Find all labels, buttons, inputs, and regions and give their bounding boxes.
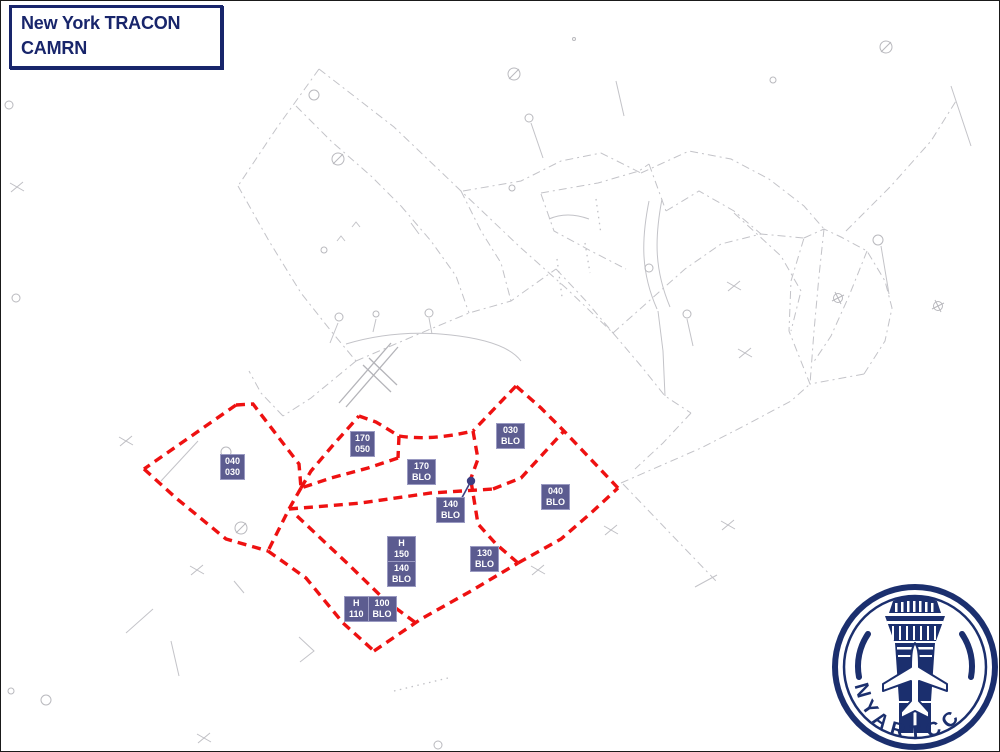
altitude-value: 150 (392, 549, 411, 560)
altitude-label-130-blo: 130 BLO (471, 547, 498, 571)
altitude-value: 170 (412, 461, 431, 472)
altitude-label-030-blo: 030 BLO (497, 424, 524, 448)
altitude-value: BLO (441, 510, 460, 521)
altitude-value: 110 (349, 609, 364, 620)
altitude-value: H (349, 598, 364, 609)
altitude-value: 140 (441, 499, 460, 510)
altitude-value: 030 (225, 467, 240, 478)
fix-dot-icon (467, 477, 475, 485)
altitude-value: BLO (546, 497, 565, 508)
altitude-value: BLO (392, 574, 411, 585)
map-title-line1: New York TRACON (21, 11, 211, 36)
altitude-label-040-030: 040 030 (221, 455, 244, 479)
altitude-value: 040 (546, 486, 565, 497)
altitude-value: BLO (475, 559, 494, 570)
nyartcc-logo: NYARTCC (829, 581, 1000, 752)
airport-runways (339, 343, 398, 407)
altitude-label-h-150-140-blo: H 150 140 BLO (388, 537, 415, 586)
altitude-value: BLO (412, 472, 431, 483)
map-title-line2: CAMRN (21, 36, 211, 61)
background-boundary-lines (238, 69, 956, 581)
altitude-label-h-110-100-blo: H 110 100 BLO (345, 597, 396, 621)
tracon-airspace-map[interactable]: New York TRACON CAMRN 040 030 170 050 17… (0, 0, 1000, 752)
map-title-box: New York TRACON CAMRN (9, 5, 223, 69)
altitude-value: 040 (225, 456, 240, 467)
altitude-value: BLO (501, 436, 520, 447)
altitude-label-040-blo: 040 BLO (542, 485, 569, 509)
altitude-label-140-blo: 140 BLO (437, 498, 464, 522)
navaid-symbols (5, 38, 883, 750)
altitude-value: H (392, 538, 411, 549)
altitude-value: 100 (373, 598, 392, 609)
altitude-value: BLO (373, 609, 392, 620)
altitude-label-170-050: 170 050 (351, 432, 374, 456)
altitude-value: 170 (355, 433, 370, 444)
altitude-value: 050 (355, 444, 370, 455)
shoreline-curves (346, 199, 670, 396)
altitude-value: 140 (392, 563, 411, 574)
altitude-value: 030 (501, 425, 520, 436)
altitude-label-170-blo: 170 BLO (408, 460, 435, 484)
altitude-value: 130 (475, 548, 494, 559)
